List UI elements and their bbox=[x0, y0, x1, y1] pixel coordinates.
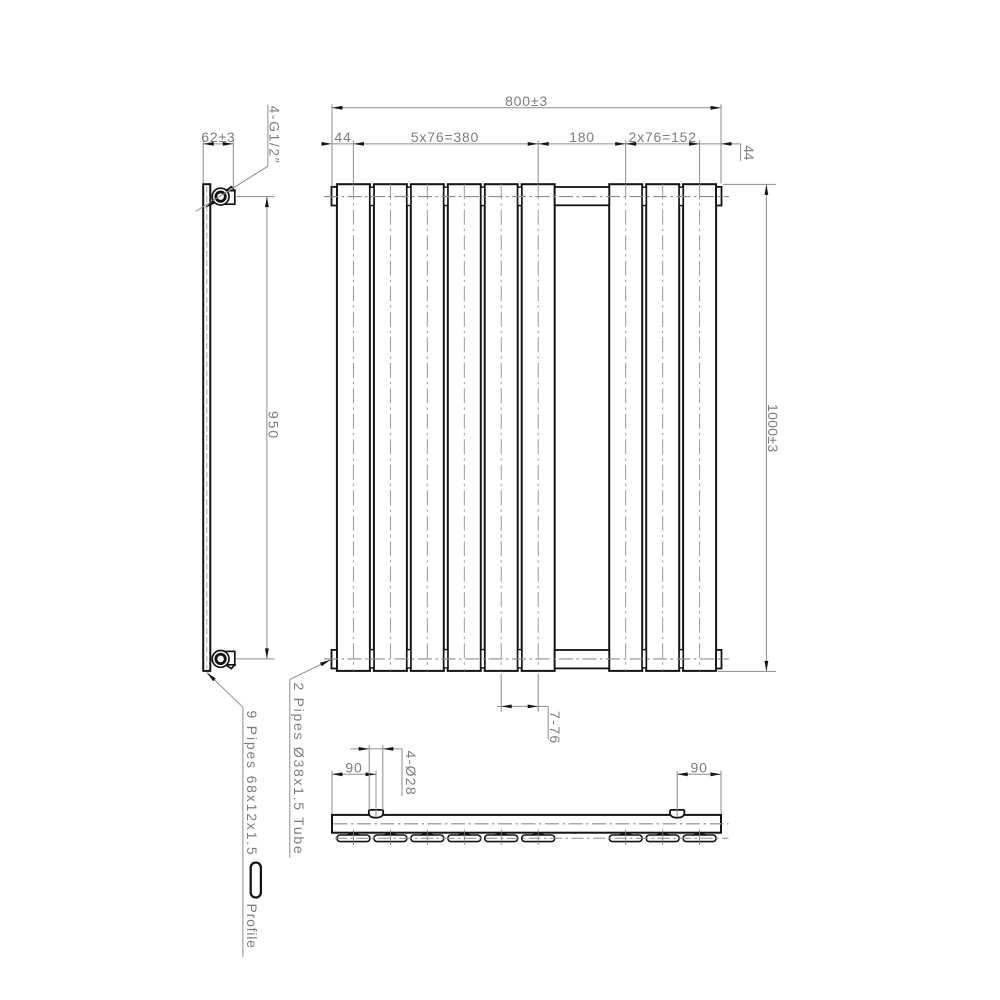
svg-text:7-76: 7-76 bbox=[547, 711, 563, 744]
svg-text:4-Ø28: 4-Ø28 bbox=[403, 751, 419, 796]
svg-text:180: 180 bbox=[569, 129, 595, 145]
svg-text:950: 950 bbox=[265, 411, 281, 439]
svg-text:Profile: Profile bbox=[244, 904, 260, 949]
svg-text:800±3: 800±3 bbox=[505, 93, 548, 109]
svg-text:2 Pipes Ø38x1.5 Tube: 2 Pipes Ø38x1.5 Tube bbox=[291, 683, 307, 855]
svg-text:90: 90 bbox=[691, 759, 708, 775]
svg-text:44: 44 bbox=[334, 129, 351, 145]
svg-text:62±3: 62±3 bbox=[201, 129, 235, 145]
svg-text:2x76=152: 2x76=152 bbox=[629, 129, 697, 145]
svg-text:1000±3: 1000±3 bbox=[765, 404, 781, 453]
svg-text:4-G1/2″: 4-G1/2″ bbox=[267, 106, 283, 164]
svg-text:5x76=380: 5x76=380 bbox=[411, 129, 479, 145]
svg-text:90: 90 bbox=[345, 759, 362, 775]
svg-text:44: 44 bbox=[741, 145, 757, 161]
svg-text:9 Pipes 68x12x1.5: 9 Pipes 68x12x1.5 bbox=[244, 711, 260, 856]
